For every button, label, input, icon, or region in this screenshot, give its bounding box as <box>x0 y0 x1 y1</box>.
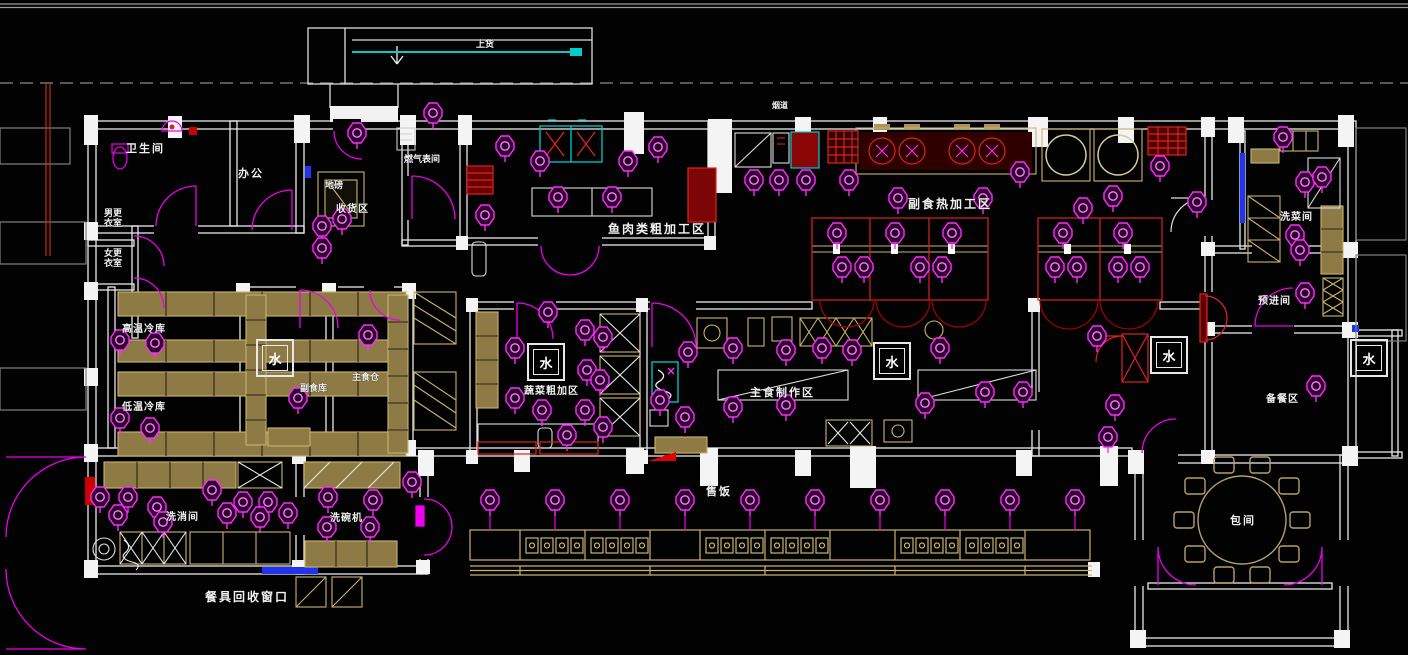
label-side-dish-hot-cooking-area: 副食热加工区 <box>908 195 992 212</box>
label-meal-serving: 售饭 <box>706 483 732 499</box>
water-marker-text: 水 <box>262 345 288 371</box>
label-serving-prep-area: 备餐区 <box>1266 390 1299 405</box>
water-supply-marker: 水 <box>527 343 565 381</box>
cad-floor-plan-canvas: 卫生间 办公 男更衣室 女更衣室 地磅 收货区 燃气表间 鱼肉类粗加工区 烟道 … <box>0 0 1408 655</box>
water-supply-marker: 水 <box>1350 339 1388 377</box>
label-receiving-area: 收货区 <box>336 200 369 215</box>
loading-ramp <box>308 28 592 122</box>
label-vegetable-washing-room: 洗菜间 <box>1280 208 1313 223</box>
label-office: 办公 <box>238 165 264 181</box>
label-staple-food-storage: 主食仓 <box>352 370 379 383</box>
label-private-dining-room: 包间 <box>1230 512 1256 528</box>
label-womens-changing-room: 女更衣室 <box>100 248 126 269</box>
label-mens-changing-room: 男更衣室 <box>100 208 126 229</box>
label-staple-food-production-area: 主食制作区 <box>750 384 815 400</box>
label-pre-entry-room: 预进间 <box>1258 292 1291 307</box>
label-vegetable-rough-prep-area: 蔬菜粗加区 <box>524 382 579 397</box>
label-high-temp-cold-storage: 高温冷库 <box>122 320 166 335</box>
label-washing-disinfection-room: 洗消间 <box>166 508 199 523</box>
label-dishwasher: 洗碗机 <box>330 509 363 524</box>
label-low-temp-cold-storage: 低温冷库 <box>122 398 166 413</box>
serving-counter <box>470 530 1092 575</box>
label-side-dish-storage: 副食库 <box>300 381 327 394</box>
water-marker-text: 水 <box>879 348 905 374</box>
label-flue: 烟道 <box>772 100 788 111</box>
water-supply-marker: 水 <box>873 342 911 380</box>
water-marker-text: 水 <box>533 349 559 375</box>
label-gas-meter-room: 燃气表间 <box>404 152 440 165</box>
water-marker-text: 水 <box>1156 342 1182 368</box>
water-supply-marker: 水 <box>256 339 294 377</box>
label-fish-meat-rough-prep-area: 鱼肉类粗加工区 <box>608 220 706 237</box>
site-boundary-lines <box>0 4 1408 83</box>
water-supply-marker: 水 <box>1150 336 1188 374</box>
label-restroom: 卫生间 <box>126 140 165 156</box>
water-marker-text: 水 <box>1356 345 1382 371</box>
label-tableware-return-window: 餐具回收窗口 <box>205 588 289 605</box>
label-ramp-up: 上货 <box>476 37 494 50</box>
floor-plan-drawing <box>0 0 1408 655</box>
label-floor-scale: 地磅 <box>325 178 343 191</box>
secondary-doors <box>820 198 1227 340</box>
